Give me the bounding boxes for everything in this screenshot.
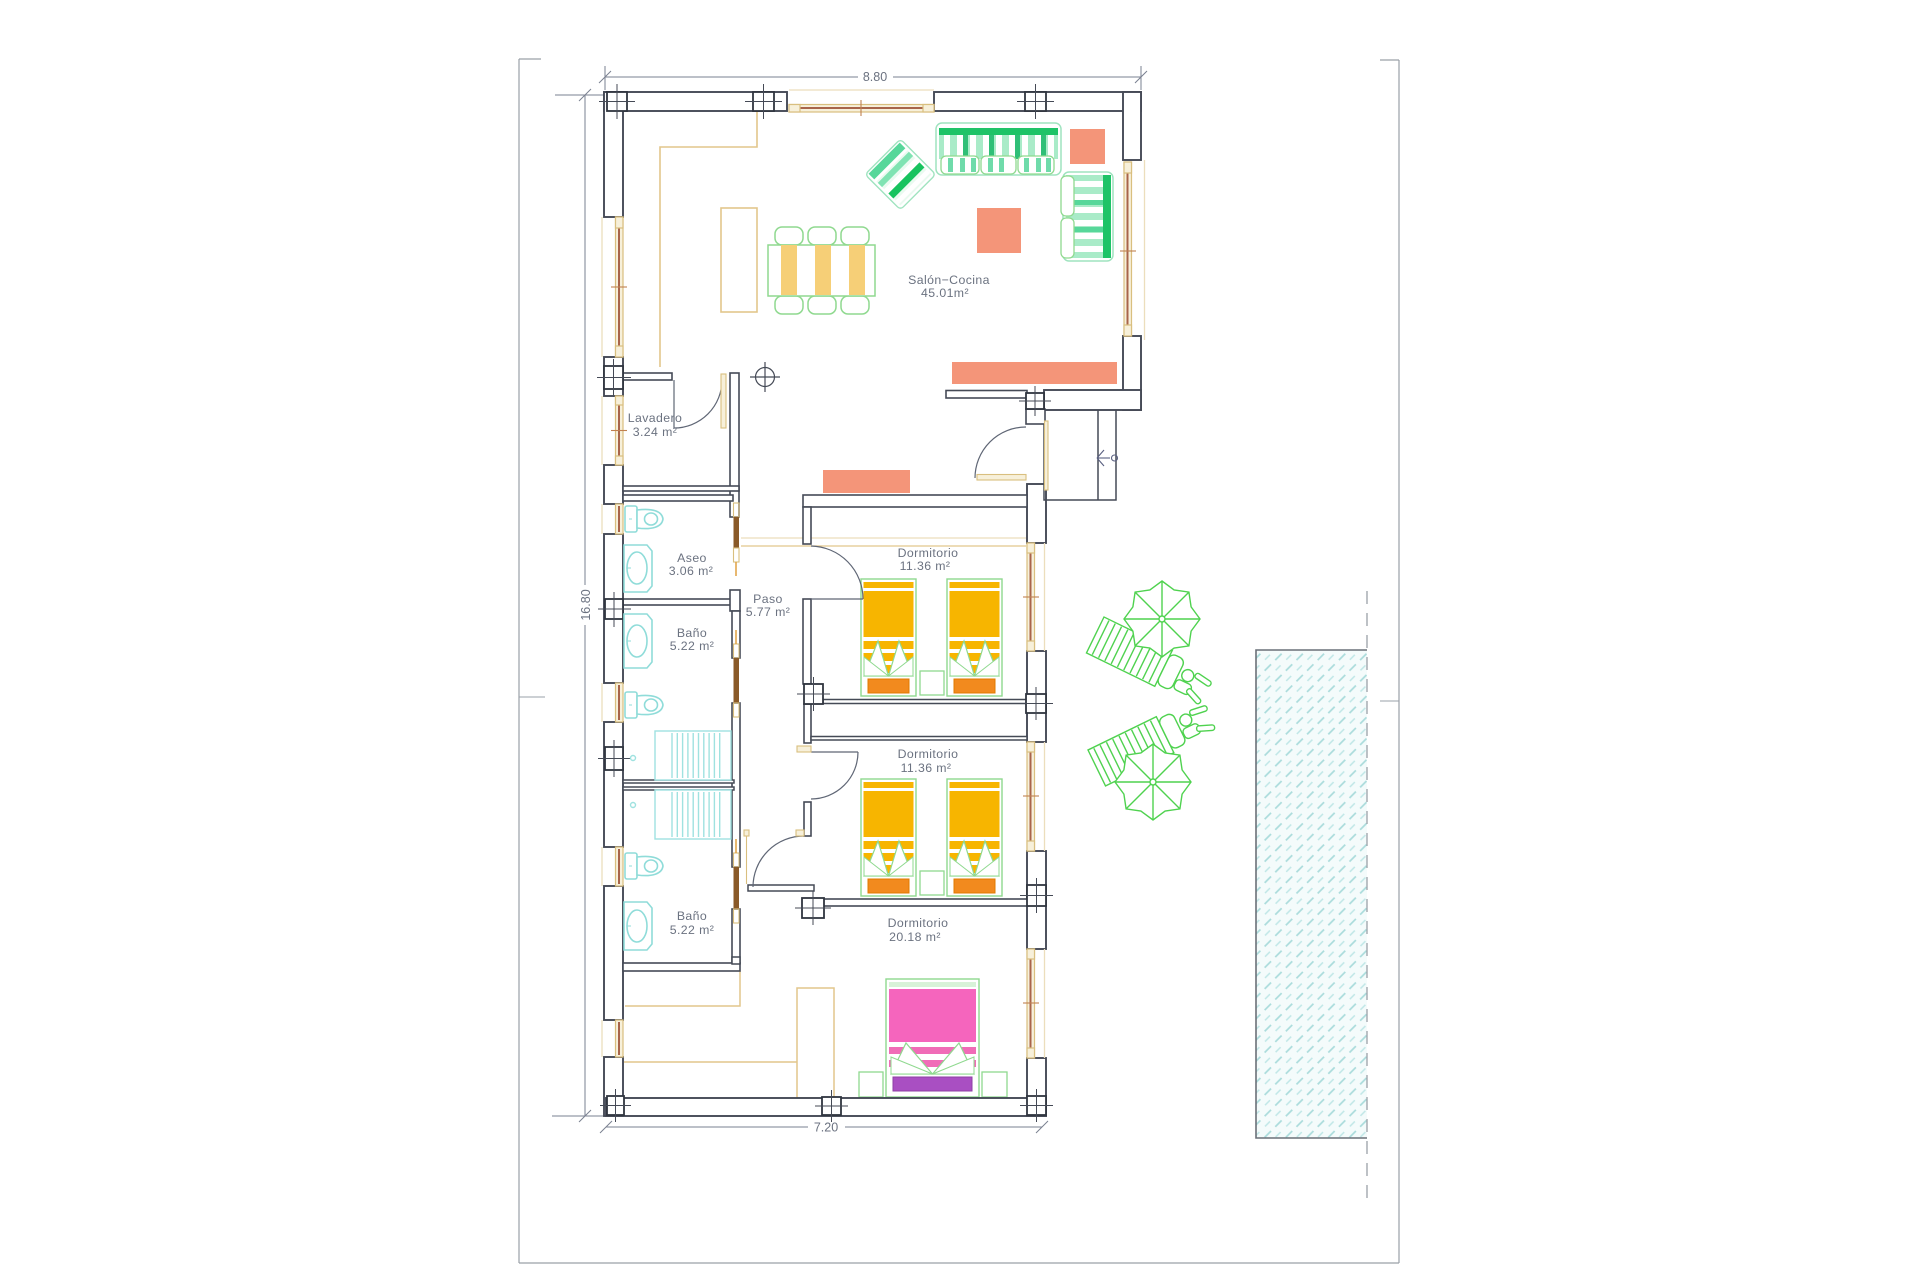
svg-text:Dormitorio: Dormitorio [898, 747, 959, 761]
svg-text:Paso: Paso [753, 592, 783, 606]
svg-text:Lavadero: Lavadero [628, 411, 682, 425]
svg-text:20.18 m²: 20.18 m² [889, 930, 941, 944]
svg-text:Aseo: Aseo [677, 551, 707, 565]
svg-text:5.22 m²: 5.22 m² [670, 923, 715, 937]
svg-text:45.01m²: 45.01m² [921, 286, 969, 300]
svg-text:8.80: 8.80 [863, 70, 887, 84]
svg-text:11.36 m²: 11.36 m² [900, 559, 951, 573]
svg-text:11.36 m²: 11.36 m² [901, 761, 952, 775]
svg-text:Baño: Baño [677, 909, 707, 923]
svg-text:16.80: 16.80 [579, 589, 593, 620]
svg-text:Dormitorio: Dormitorio [888, 916, 949, 930]
svg-text:3.24 m²: 3.24 m² [633, 425, 678, 439]
svg-text:5.77 m²: 5.77 m² [746, 605, 791, 619]
svg-text:Dormitorio: Dormitorio [898, 546, 959, 560]
svg-text:3.06 m²: 3.06 m² [669, 564, 714, 578]
svg-text:5.22 m²: 5.22 m² [670, 639, 715, 653]
svg-text:7.20: 7.20 [814, 1121, 838, 1135]
svg-text:Salón−Cocina: Salón−Cocina [908, 273, 990, 287]
svg-text:Baño: Baño [677, 626, 707, 640]
